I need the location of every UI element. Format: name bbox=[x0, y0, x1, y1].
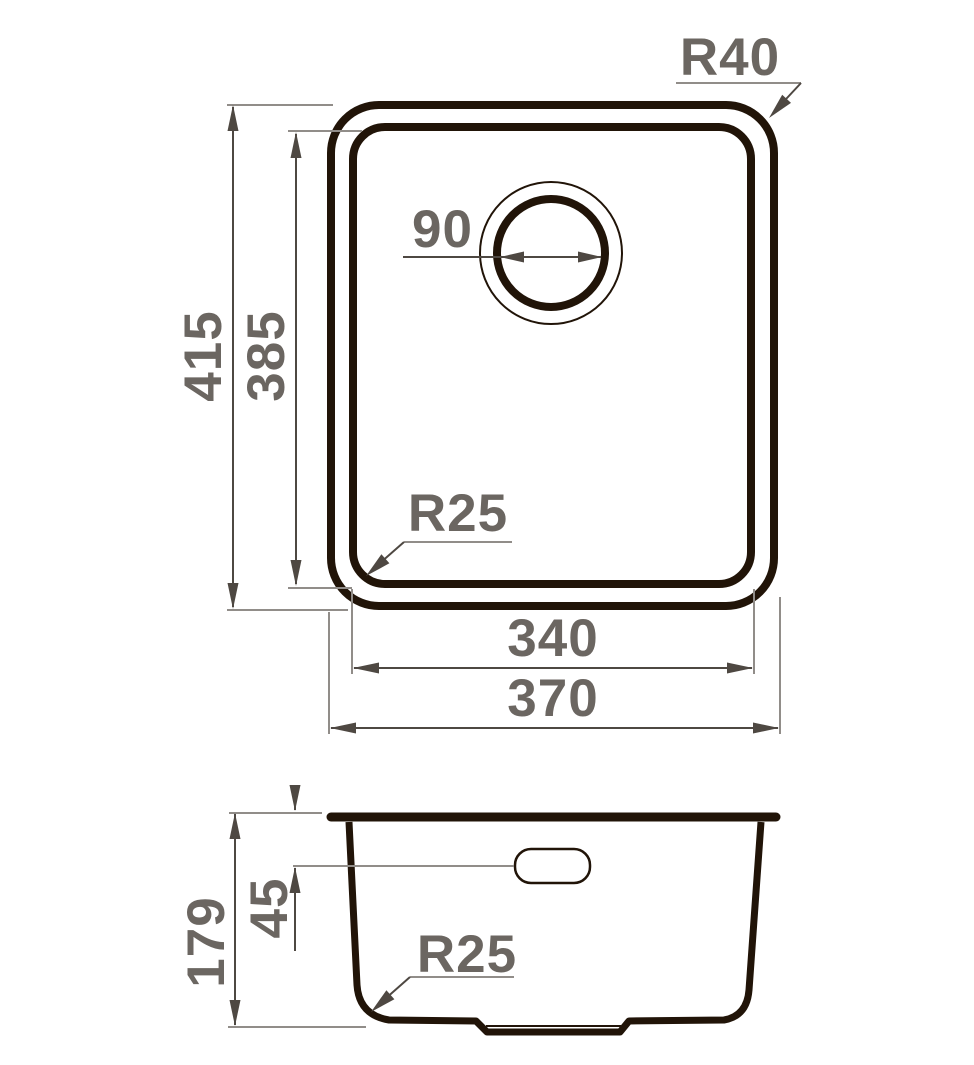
arrowhead-down-icon bbox=[230, 1000, 241, 1026]
overflow-hole bbox=[515, 849, 590, 883]
sink-outer-rim-outline bbox=[331, 105, 774, 606]
dim-label-385: 385 bbox=[237, 310, 296, 401]
radius-label-r25-top: R25 bbox=[408, 484, 508, 543]
dim-label-45: 45 bbox=[240, 878, 299, 939]
side-view: 45 179 R25 bbox=[177, 785, 776, 1032]
basin-section-outline bbox=[349, 822, 761, 1032]
arrowhead-up-icon bbox=[228, 105, 239, 131]
arrowhead-right-icon bbox=[578, 252, 602, 263]
drain-outer-circle bbox=[480, 182, 622, 324]
dim-bottom-corner-radius: R25 bbox=[371, 925, 517, 1012]
arrowhead-up-icon bbox=[291, 132, 302, 158]
dim-inner-width: 340 bbox=[352, 589, 754, 674]
sink-technical-drawing: R40 90 415 385 bbox=[0, 0, 974, 1065]
arrowhead-right-icon bbox=[753, 723, 779, 734]
dim-label-179: 179 bbox=[177, 896, 236, 987]
arrowhead-down-icon bbox=[290, 785, 301, 811]
dim-label-90: 90 bbox=[412, 200, 473, 259]
radius-label-r25-side: R25 bbox=[417, 925, 517, 984]
arrowhead-left-icon bbox=[353, 663, 379, 674]
drawing-canvas: R40 90 415 385 bbox=[0, 0, 974, 1065]
top-view: R40 90 415 385 bbox=[174, 28, 801, 734]
arrowhead-down-icon bbox=[291, 560, 302, 586]
arrowhead-up-icon bbox=[230, 813, 241, 839]
dim-label-415: 415 bbox=[174, 310, 233, 401]
dim-label-340: 340 bbox=[507, 609, 598, 668]
arrowhead-down-icon bbox=[228, 583, 239, 609]
arrowhead-left-icon bbox=[330, 723, 356, 734]
dim-inner-height: 385 bbox=[237, 131, 362, 588]
arrowhead-right-icon bbox=[727, 663, 753, 674]
dim-corner-radius-inner: R25 bbox=[366, 484, 512, 576]
radius-label-r40: R40 bbox=[680, 28, 780, 87]
dim-label-370: 370 bbox=[507, 669, 598, 728]
drain-inner-circle bbox=[497, 199, 605, 307]
arrowhead-left-icon bbox=[500, 252, 524, 263]
